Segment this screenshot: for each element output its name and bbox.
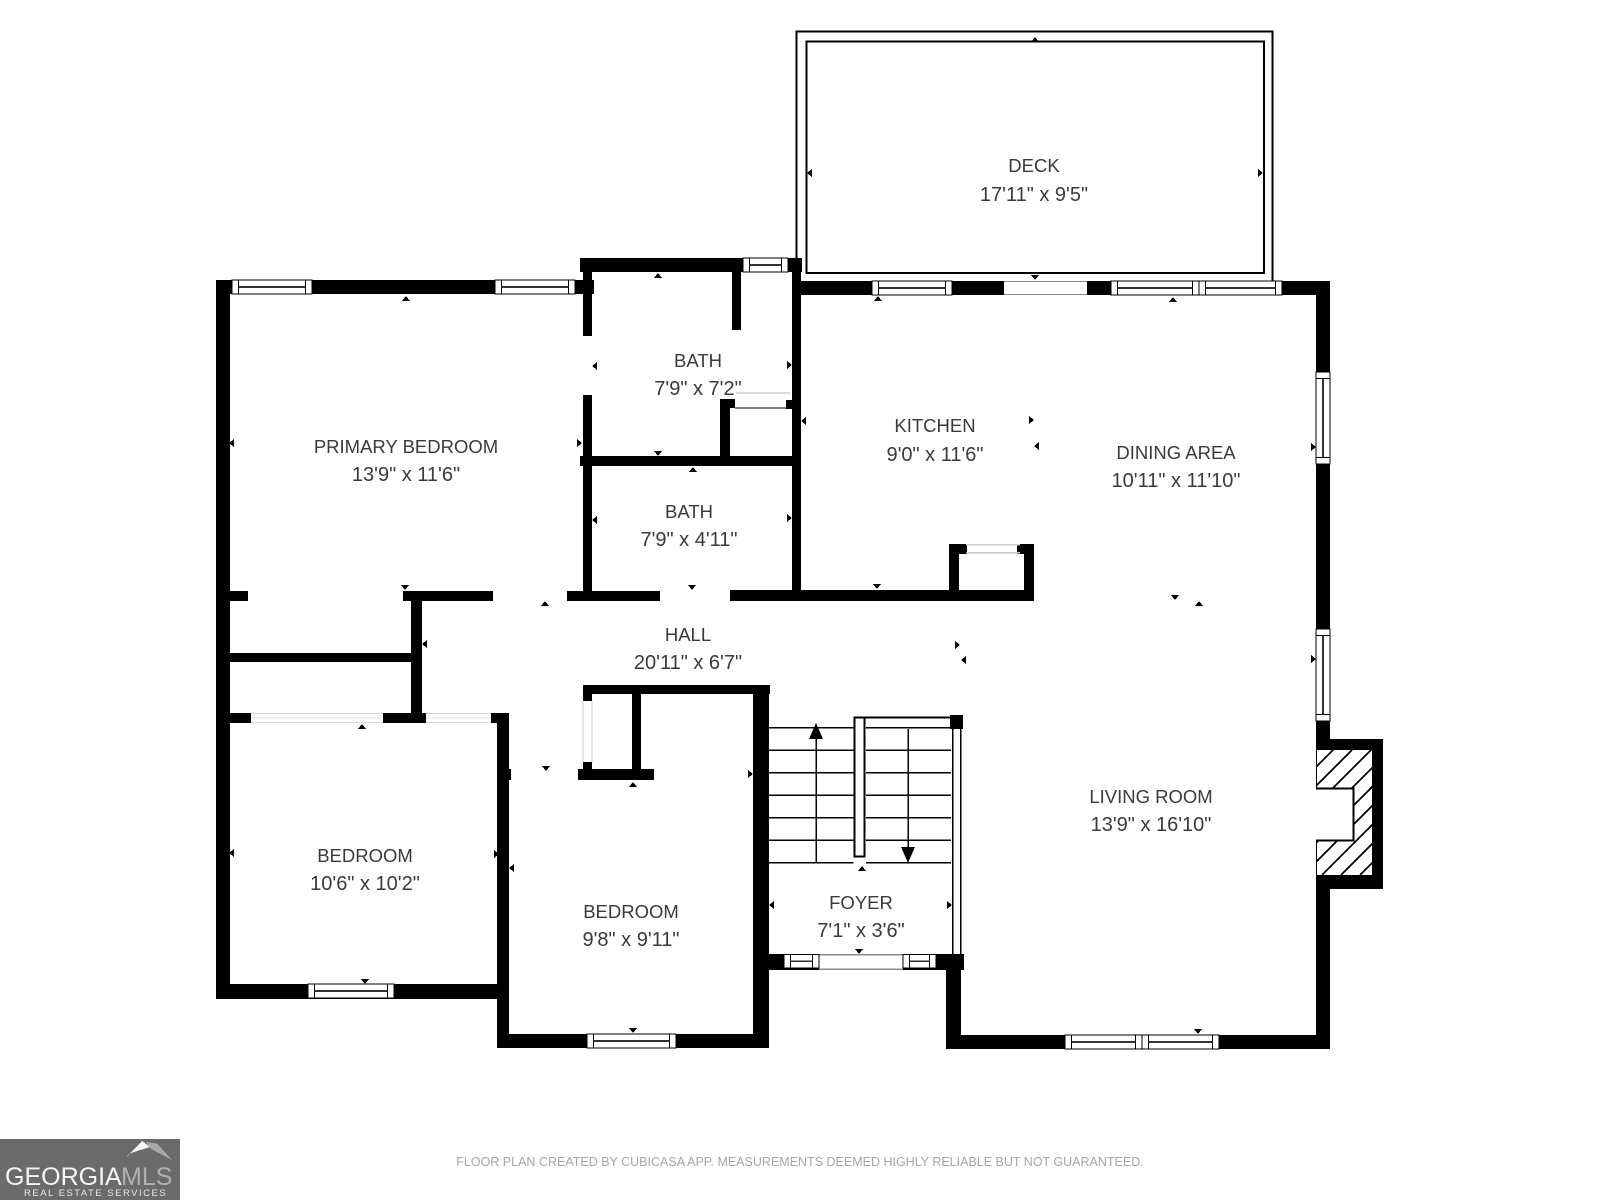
svg-text:REAL ESTATE SERVICES: REAL ESTATE SERVICES xyxy=(24,1188,167,1199)
svg-text:FOYER: FOYER xyxy=(829,892,893,913)
svg-text:10'6" x 10'2": 10'6" x 10'2" xyxy=(310,873,420,895)
svg-text:7'9" x 4'11": 7'9" x 4'11" xyxy=(640,529,737,551)
svg-text:9'8" x 9'11": 9'8" x 9'11" xyxy=(582,929,679,951)
svg-text:7'1" x 3'6": 7'1" x 3'6" xyxy=(817,920,904,942)
svg-text:KITCHEN: KITCHEN xyxy=(894,415,975,436)
svg-text:DECK: DECK xyxy=(1008,155,1060,176)
svg-text:20'11" x 6'7": 20'11" x 6'7" xyxy=(634,652,742,674)
svg-text:LIVING ROOM: LIVING ROOM xyxy=(1089,786,1212,807)
svg-text:BATH: BATH xyxy=(674,350,722,371)
svg-text:10'11" x 11'10": 10'11" x 11'10" xyxy=(1112,470,1241,492)
svg-text:PRIMARY BEDROOM: PRIMARY BEDROOM xyxy=(314,436,498,457)
svg-text:13'9" x 11'6": 13'9" x 11'6" xyxy=(352,464,460,486)
svg-text:BEDROOM: BEDROOM xyxy=(583,901,679,922)
svg-text:BEDROOM: BEDROOM xyxy=(317,845,413,866)
svg-text:17'11" x 9'5": 17'11" x 9'5" xyxy=(980,184,1088,206)
svg-text:DINING AREA: DINING AREA xyxy=(1116,442,1236,463)
svg-text:HALL: HALL xyxy=(665,624,711,645)
svg-text:FLOOR PLAN CREATED BY CUBICASA: FLOOR PLAN CREATED BY CUBICASA APP. MEAS… xyxy=(456,1155,1143,1169)
svg-text:7'9" x 7'2": 7'9" x 7'2" xyxy=(654,378,741,400)
svg-text:GEORGIA: GEORGIA xyxy=(5,1163,122,1191)
svg-text:BATH: BATH xyxy=(665,501,713,522)
svg-text:9'0" x 11'6": 9'0" x 11'6" xyxy=(886,444,983,466)
svg-text:13'9" x 16'10": 13'9" x 16'10" xyxy=(1091,814,1212,836)
svg-text:MLS: MLS xyxy=(121,1163,172,1191)
